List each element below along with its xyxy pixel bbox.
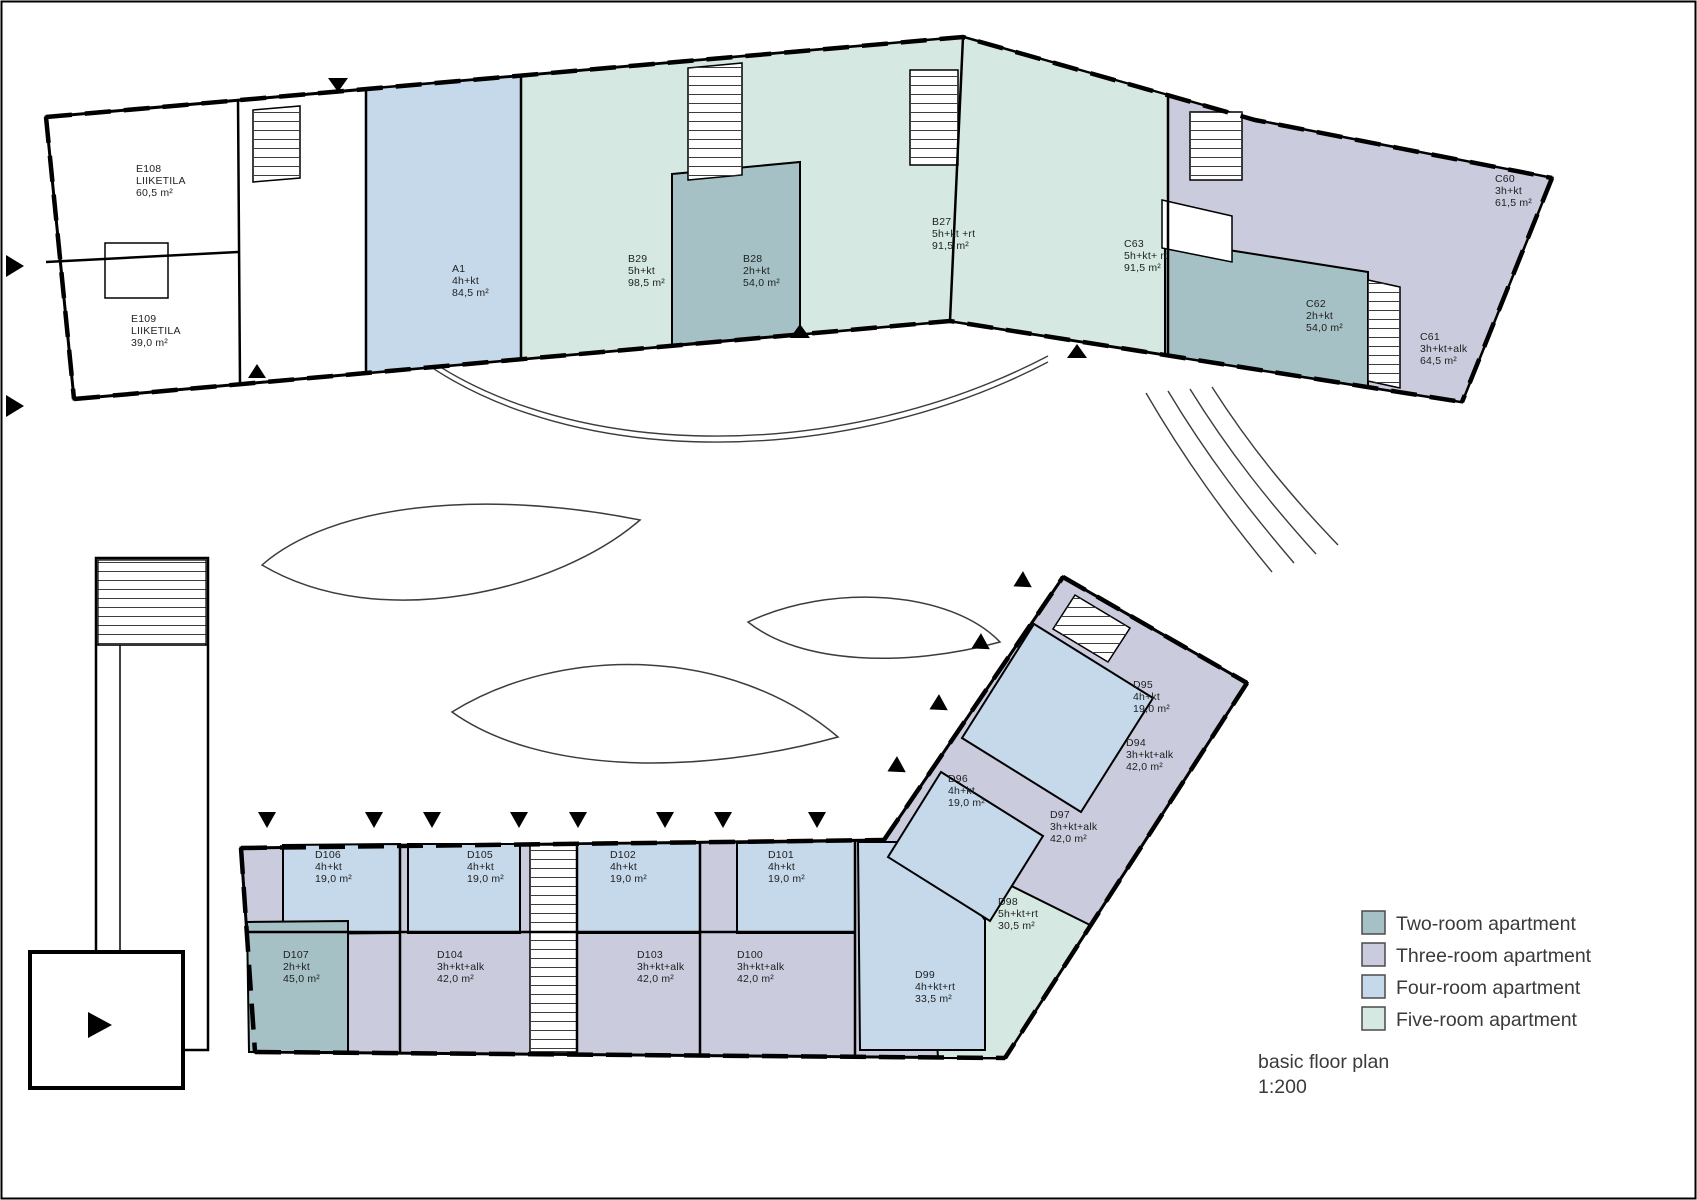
svg-text:42,0 m²: 42,0 m² [437,973,474,985]
triangle-marker-icon [510,812,528,828]
svg-text:2h+kt: 2h+kt [743,265,770,277]
triangle-marker-icon [1013,571,1036,595]
svg-text:LIIKETILA: LIIKETILA [136,175,186,187]
svg-text:C63: C63 [1124,238,1144,250]
triangle-marker-icon [258,812,276,828]
legend-swatch-three-room [1362,943,1385,966]
svg-text:45,0 m²: 45,0 m² [283,973,320,985]
title-line2: 1:200 [1258,1076,1307,1098]
unit-d101-region [737,841,855,933]
svg-text:3h+kt+alk: 3h+kt+alk [1126,749,1174,761]
svg-text:61,5 m²: 61,5 m² [1495,197,1532,209]
svg-text:54,0 m²: 54,0 m² [743,277,780,289]
driveway-curve [1168,391,1294,563]
svg-text:19,0 m²: 19,0 m² [1133,703,1170,715]
triangle-marker-icon [1067,344,1087,358]
svg-text:42,0 m²: 42,0 m² [737,973,774,985]
title-line1: basic floor plan [1258,1051,1389,1073]
triangle-marker-icon [423,812,441,828]
svg-text:B29: B29 [628,253,647,265]
svg-text:4h+kt: 4h+kt [1133,691,1160,703]
svg-text:3h+kt+alk: 3h+kt+alk [1420,343,1468,355]
svg-text:19,0 m²: 19,0 m² [610,873,647,885]
svg-text:84,5 m²: 84,5 m² [452,287,489,299]
svg-text:D95: D95 [1133,679,1153,691]
leaf-shape-1 [262,504,640,600]
svg-text:91,5 m²: 91,5 m² [932,240,969,252]
unit-a1-region [366,76,521,373]
svg-text:D98: D98 [998,896,1018,908]
site-box [30,952,183,1088]
triangle-marker-icon [569,812,587,828]
legend-swatch-four-room [1362,975,1385,998]
svg-text:D99: D99 [915,969,935,981]
direction-marker-icon [6,395,24,417]
legend: Two-room apartment Three-room apartment … [1362,911,1592,1031]
svg-text:64,5 m²: 64,5 m² [1420,355,1457,367]
svg-text:60,5 m²: 60,5 m² [136,187,173,199]
svg-text:Four-room apartment: Four-room apartment [1396,977,1581,999]
svg-text:C62: C62 [1306,298,1326,310]
svg-text:3h+kt+alk: 3h+kt+alk [637,961,685,973]
svg-text:4h+kt: 4h+kt [768,861,795,873]
direction-marker-icon [6,255,24,277]
svg-text:D94: D94 [1126,737,1146,749]
svg-text:98,5 m²: 98,5 m² [628,277,665,289]
unit-d105-region [408,844,520,933]
svg-text:4h+kt: 4h+kt [610,861,637,873]
svg-text:33,5 m²: 33,5 m² [915,993,952,1005]
svg-text:54,0 m²: 54,0 m² [1306,322,1343,334]
triangle-marker-icon [714,812,732,828]
courtyard-leaf-shapes [262,504,1000,763]
svg-text:3h+kt+alk: 3h+kt+alk [437,961,485,973]
svg-text:42,0 m²: 42,0 m² [1126,761,1163,773]
svg-text:5h+kt+ rt: 5h+kt+ rt [1124,250,1167,262]
svg-text:E109: E109 [131,313,156,325]
triangle-marker-icon [365,812,383,828]
triangle-marker-icon [656,812,674,828]
svg-text:4h+kt: 4h+kt [948,785,975,797]
driveway-curve [1190,389,1316,554]
triangle-marker-icon [887,756,910,780]
svg-text:Two-room apartment: Two-room apartment [1396,913,1576,935]
svg-text:D97: D97 [1050,809,1070,821]
svg-text:C61: C61 [1420,331,1440,343]
svg-text:30,5 m²: 30,5 m² [998,920,1035,932]
svg-text:5h+kt +rt: 5h+kt +rt [932,228,975,240]
svg-text:E108: E108 [136,163,161,175]
svg-text:19,0 m²: 19,0 m² [467,873,504,885]
floor-plan-page: E108 LIIKETILA 60,5 m² E109 LIIKETILA 39… [0,0,1697,1200]
svg-text:D106: D106 [315,849,341,861]
driveway-curve [1146,393,1272,572]
svg-text:Three-room apartment: Three-room apartment [1396,945,1592,967]
leaf-shape-2 [452,665,838,763]
svg-text:42,0 m²: 42,0 m² [1050,833,1087,845]
svg-text:4h+kt: 4h+kt [452,275,479,287]
svg-text:D96: D96 [948,773,968,785]
legend-item-two-room: Two-room apartment [1362,911,1576,935]
svg-text:C60: C60 [1495,173,1515,185]
svg-text:4h+kt+rt: 4h+kt+rt [915,981,955,993]
service-tower [30,558,208,1088]
svg-text:39,0 m²: 39,0 m² [131,337,168,349]
svg-text:D100: D100 [737,949,763,961]
svg-text:91,5 m²: 91,5 m² [1124,262,1161,274]
svg-text:B27: B27 [932,216,951,228]
triangle-marker-icon [808,812,826,828]
svg-text:A1: A1 [452,263,465,275]
unit-b29-b27-c63-region [521,37,1168,359]
svg-text:2h+kt: 2h+kt [283,961,310,973]
svg-text:LIIKETILA: LIIKETILA [131,325,181,337]
svg-text:5h+kt: 5h+kt [628,265,655,277]
unit-d107-region [247,921,348,1052]
legend-item-three-room: Three-room apartment [1362,943,1592,967]
legend-swatch-two-room [1362,911,1385,934]
svg-text:D103: D103 [637,949,663,961]
svg-text:19,0 m²: 19,0 m² [315,873,352,885]
legend-item-four-room: Four-room apartment [1362,975,1581,999]
svg-text:2h+kt: 2h+kt [1306,310,1333,322]
svg-text:5h+kt+rt: 5h+kt+rt [998,908,1038,920]
svg-text:4h+kt: 4h+kt [467,861,494,873]
drawing-title: basic floor plan 1:200 [1258,1051,1389,1098]
legend-swatch-five-room [1362,1007,1385,1030]
svg-text:3h+kt: 3h+kt [1495,185,1522,197]
tower-stairs [98,560,206,645]
legend-item-five-room: Five-room apartment [1362,1007,1578,1031]
driveway-curve [1212,387,1338,545]
edge-markers [6,255,24,417]
unit-b28-region [672,162,800,345]
svg-text:3h+kt+alk: 3h+kt+alk [737,961,785,973]
floor-plan-canvas: E108 LIIKETILA 60,5 m² E109 LIIKETILA 39… [0,0,1697,1200]
svg-text:Five-room apartment: Five-room apartment [1396,1009,1578,1031]
triangle-marker-icon [929,694,952,718]
svg-text:42,0 m²: 42,0 m² [637,973,674,985]
leaf-shape-3 [748,597,1000,658]
top-building [46,37,1552,402]
svg-text:3h+kt+alk: 3h+kt+alk [1050,821,1098,833]
svg-text:4h+kt: 4h+kt [315,861,342,873]
svg-text:D101: D101 [768,849,794,861]
svg-text:D107: D107 [283,949,309,961]
unit-d102-region [577,843,700,933]
svg-text:D104: D104 [437,949,463,961]
svg-text:B28: B28 [743,253,762,265]
svg-text:D105: D105 [467,849,493,861]
svg-text:19,0 m²: 19,0 m² [948,797,985,809]
svg-text:D102: D102 [610,849,636,861]
svg-text:19,0 m²: 19,0 m² [768,873,805,885]
